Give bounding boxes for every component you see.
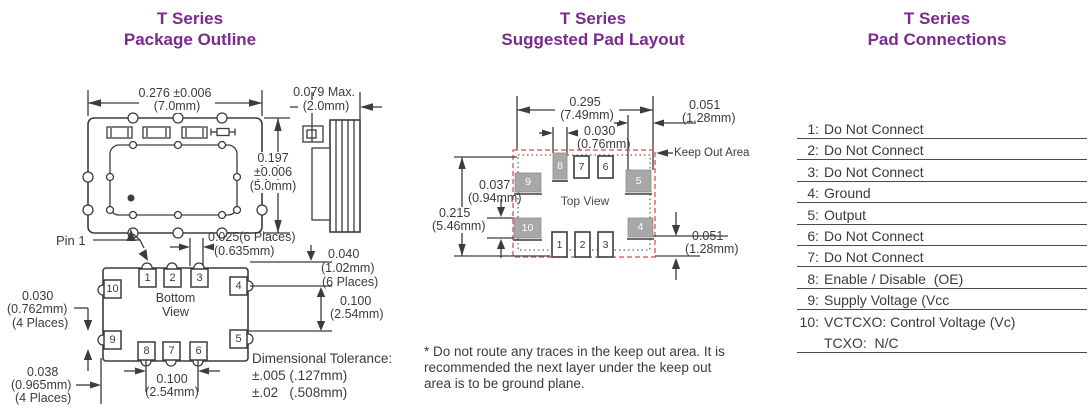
pad-connection-row-2: 2:Do Not Connect <box>797 140 1087 160</box>
pad-layout-title-line1: T Series <box>503 8 683 29</box>
pad-connection-row-10: 10:VCTCXO: Control Voltage (Vc) <box>797 312 1087 331</box>
layout-pad-3: 3 <box>598 240 613 251</box>
pad-connections-title-line2: Pad Connections <box>847 29 1027 50</box>
layout-pad-6: 6 <box>598 162 613 173</box>
dim-height-1: 0.197 <box>250 152 296 165</box>
pad-num: 1: <box>797 121 819 138</box>
pad-connection-row-8: 8:Enable / Disable (OE) <box>797 269 1087 289</box>
layout-pad-5: 5 <box>626 176 651 187</box>
bottom-pad-10: 10 <box>104 283 121 295</box>
dim-pad-width: 0.025(6 Places) <box>208 231 296 244</box>
pad-function: Do Not Connect <box>824 249 924 266</box>
pad-num: 9: <box>797 292 819 309</box>
pad-function: Do Not Connect <box>824 228 924 245</box>
keep-out-area-label: Keep Out Area <box>674 147 749 160</box>
pin1-label: Pin 1 <box>56 234 86 247</box>
layout-pad-8: 8 <box>553 161 567 172</box>
top-view-label: Top View <box>554 195 616 208</box>
dim-corner-pad-places: (4 Places) <box>15 392 71 405</box>
tolerance-line-1: ±.005 (.127mm) <box>252 368 347 383</box>
bottom-pad-1: 1 <box>139 272 156 284</box>
layout-dim-pad-width-mm: (0.76mm) <box>577 138 630 151</box>
pad-connection-row-7: 7:Do Not Connect <box>797 247 1087 267</box>
bottom-pad-7: 7 <box>163 345 180 357</box>
pad-function: Do Not Connect <box>824 164 924 181</box>
bottom-pad-9: 9 <box>104 334 121 346</box>
bottom-view-label-2: View <box>145 306 206 319</box>
pad-connection-row-4: 4:Ground <box>797 183 1087 203</box>
pad-function: TCXO: N/C <box>824 335 899 352</box>
pad-connections-title-line1: T Series <box>847 8 1027 29</box>
dim-pad-length-places: (6 Places) <box>322 276 378 289</box>
pad-connection-row-5: 5:Output <box>797 205 1087 225</box>
dim-width-mm: (7.0mm) <box>139 100 215 113</box>
pad-num: 4: <box>797 185 819 202</box>
pad-num: 5: <box>797 207 819 224</box>
layout-dim-051-bot-mm: (1.28mm) <box>685 243 738 256</box>
layout-pad-7: 7 <box>574 162 589 173</box>
pad-function: Output <box>824 207 866 224</box>
layout-dim-width-mm: (7.49mm) <box>555 109 619 122</box>
dim-thickness-mm: (2.0mm) <box>298 100 354 113</box>
pad-connection-row-3: 3:Do Not Connect <box>797 162 1087 182</box>
bottom-pad-4: 4 <box>230 280 247 292</box>
pad-function: Do Not Connect <box>824 121 924 138</box>
tolerance-line-2: ±.02 (.508mm) <box>252 385 347 400</box>
tolerance-title: Dimensional Tolerance: <box>252 351 392 366</box>
pad-num: 10: <box>797 314 819 331</box>
pad-num: 8: <box>797 271 819 288</box>
layout-dim-037-mm: (0.94mm) <box>468 192 521 205</box>
pad-function: Enable / Disable (OE) <box>824 271 963 288</box>
bottom-pad-5: 5 <box>230 333 247 345</box>
pad-num: 2: <box>797 142 819 159</box>
layout-pad-10: 10 <box>514 223 541 234</box>
dim-pad-width-mm: (0.635mm) <box>214 245 274 258</box>
layout-pad-2: 2 <box>575 240 590 251</box>
outline-title-line2: Package Outline <box>100 29 280 50</box>
pad-function: VCTCXO: Control Voltage (Vc) <box>824 314 1015 331</box>
layout-pad-1: 1 <box>552 240 567 251</box>
layout-dim-height-mm: (5.46mm) <box>430 220 487 233</box>
keep-out-note-line3: area is to be ground plane. <box>424 376 585 391</box>
bottom-pad-6: 6 <box>190 345 207 357</box>
pad-function: Do Not Connect <box>824 142 924 159</box>
dim-height-3: (5.0mm) <box>243 180 303 193</box>
bottom-pad-8: 8 <box>138 345 155 357</box>
outline-title-line1: T Series <box>100 8 280 29</box>
pad-function: Supply Voltage (Vcc <box>824 292 949 309</box>
dim-height-2: ±0.006 <box>246 166 300 179</box>
dim-pad-length: 0.040 <box>328 248 359 261</box>
dim-thickness: 0.079 Max. <box>283 86 365 99</box>
pad-num: 3: <box>797 164 819 181</box>
keep-out-note-line1: * Do not route any traces in the keep ou… <box>424 344 725 359</box>
layout-dim-051-top-mm: (1.28mm) <box>682 112 735 125</box>
dim-pitch-bottom-mm: (2.54mm) <box>143 386 201 399</box>
pad-connection-row-10b: TCXO: N/C <box>797 333 1087 353</box>
pad-connection-row-9: 9:Supply Voltage (Vcc <box>797 290 1087 310</box>
keep-out-note-line2: recommended the next layer under the kee… <box>424 360 711 375</box>
top-view-shape <box>83 113 267 238</box>
layout-pad-9: 9 <box>515 177 541 188</box>
dim-side-pad-places: (4 Places) <box>12 317 68 330</box>
bottom-pad-2: 2 <box>164 272 181 284</box>
pad-connection-row-1: 1:Do Not Connect <box>797 119 1087 139</box>
dim-side-pad-mm: (0.762mm) <box>7 303 67 316</box>
pad-layout-title-line2: Suggested Pad Layout <box>473 29 713 50</box>
bottom-view-label-1: Bottom <box>145 292 206 305</box>
pad-function: Ground <box>824 185 871 202</box>
pad-num: 7: <box>797 249 819 266</box>
dim-pitch-right-mm: (2.54mm) <box>330 308 383 321</box>
pad-connection-row-6: 6:Do Not Connect <box>797 226 1087 246</box>
bottom-pad-3: 3 <box>191 272 208 284</box>
layout-pad-4: 4 <box>628 222 653 233</box>
dim-pad-length-mm: (1.02mm) <box>321 262 374 275</box>
datasheet-figure: T Series Package Outline T Series Sugges… <box>0 0 1091 408</box>
pin1-dot-marker <box>128 195 135 202</box>
pad-num: 6: <box>797 228 819 245</box>
